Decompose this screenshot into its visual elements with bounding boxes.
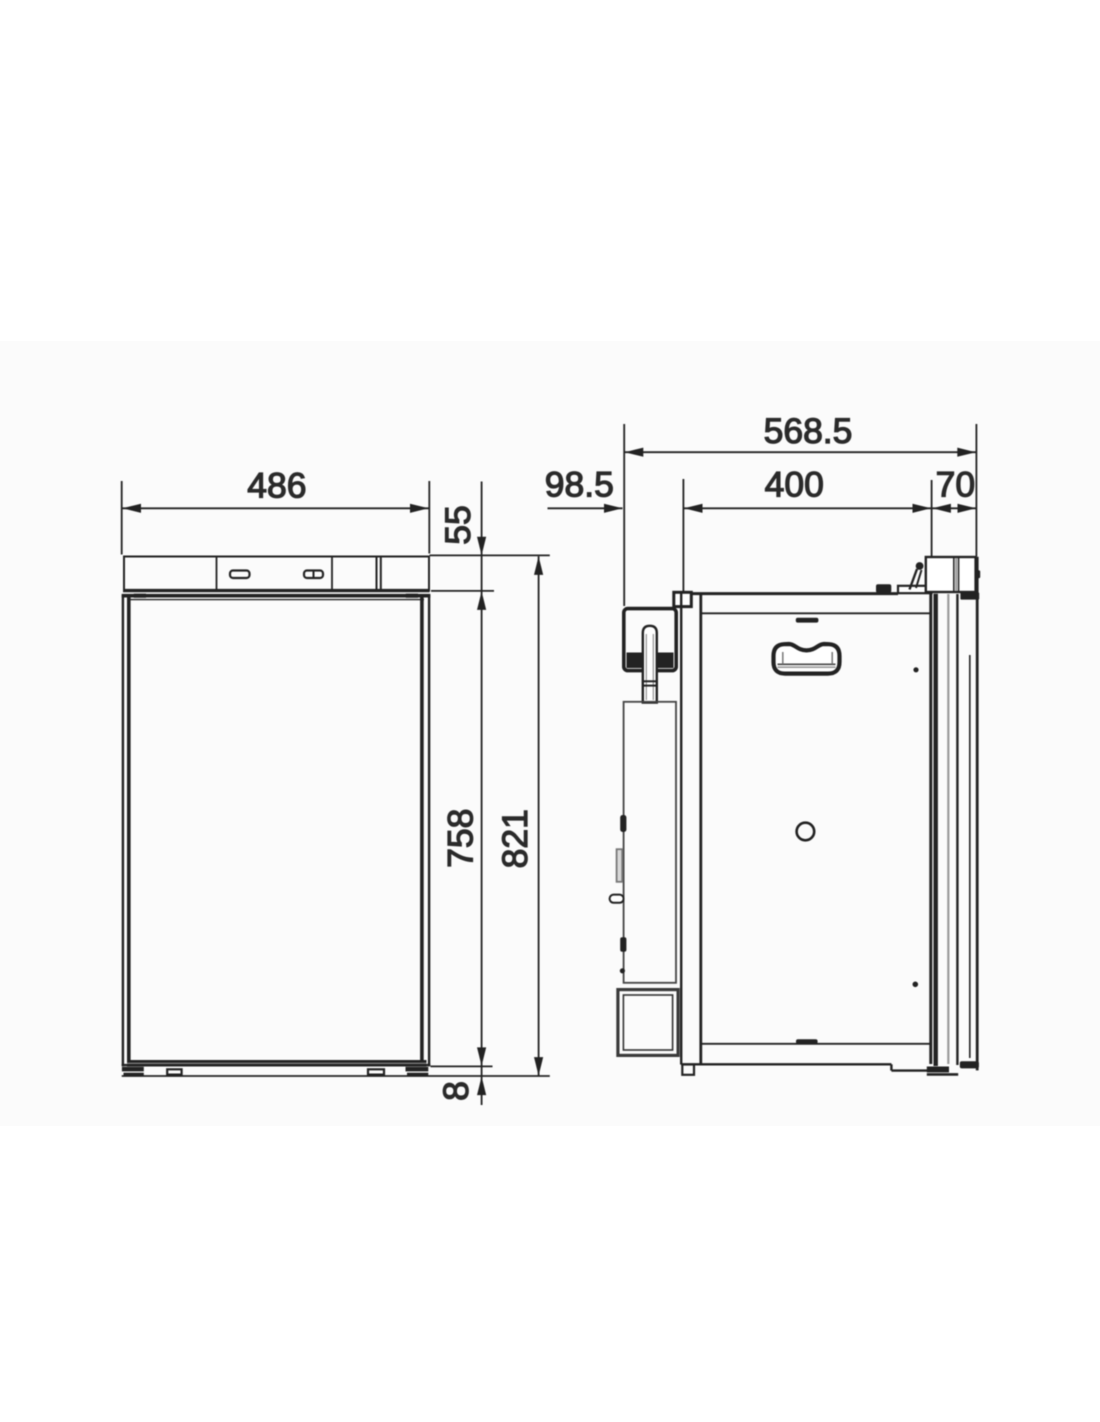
svg-text:758: 758	[440, 809, 480, 868]
svg-text:821: 821	[495, 809, 535, 868]
svg-text:568.5: 568.5	[764, 411, 853, 451]
svg-text:400: 400	[765, 465, 824, 505]
svg-text:55: 55	[438, 505, 478, 545]
svg-text:98.5: 98.5	[545, 465, 614, 505]
svg-text:486: 486	[247, 465, 306, 505]
svg-text:70: 70	[936, 465, 976, 505]
svg-text:8: 8	[436, 1081, 476, 1101]
